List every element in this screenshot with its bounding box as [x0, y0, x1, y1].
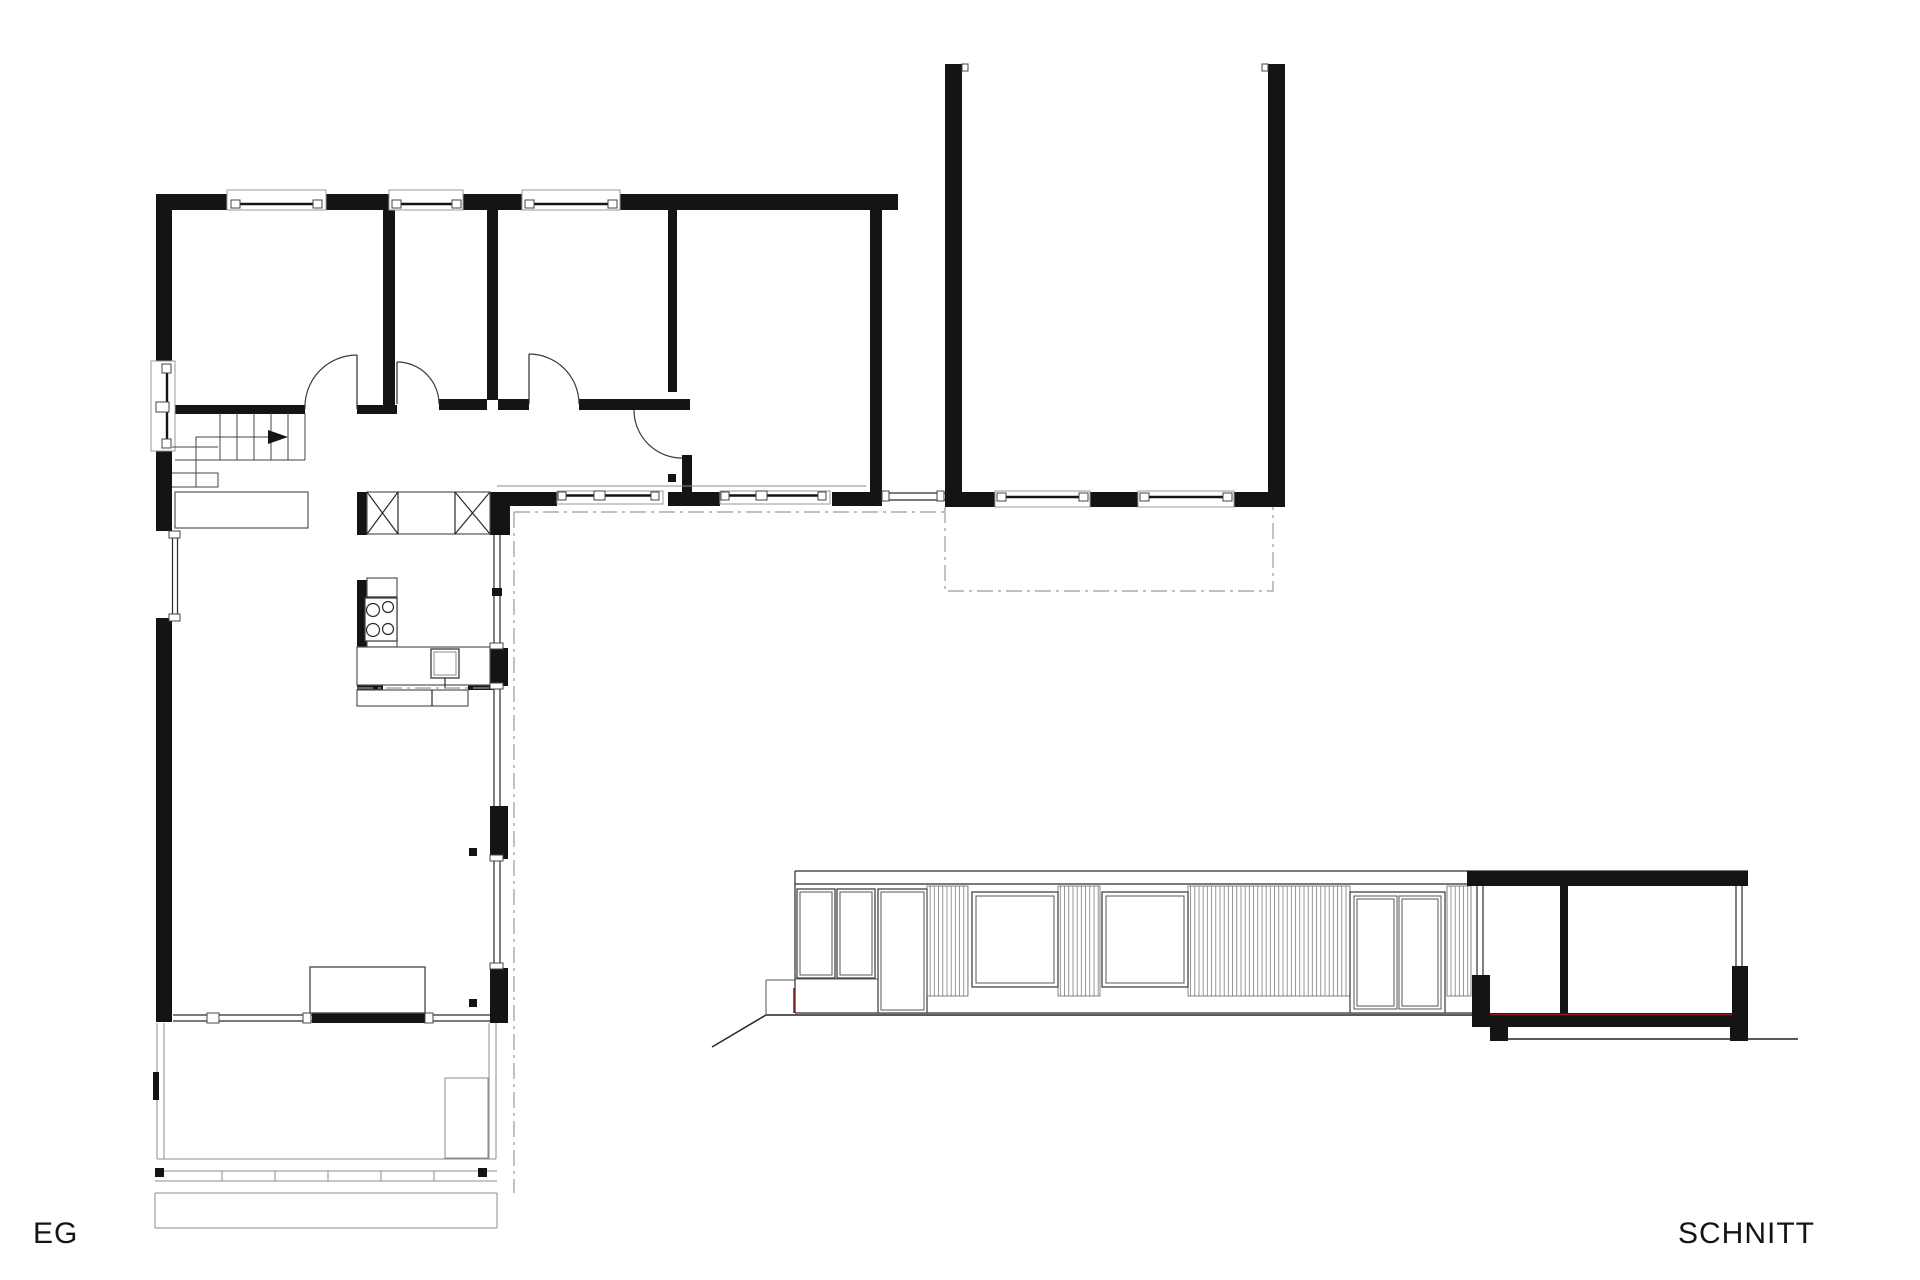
staircase: [172, 413, 305, 487]
cut-structure: [1467, 871, 1748, 1041]
stair-direction-arrow: [268, 430, 288, 444]
floor-plan: [151, 64, 1285, 1228]
garage: [945, 64, 1285, 507]
sliding-door: [1350, 892, 1445, 1013]
section-label: SCHNITT: [1678, 1217, 1815, 1250]
timber-cladding: [1058, 886, 1100, 996]
stove-icon: [365, 598, 397, 641]
exterior-walls: [156, 194, 898, 1023]
door-swing-icon: [305, 355, 357, 409]
drawing-sheet: EG SCHNITT: [0, 0, 1920, 1280]
window-icon: [720, 491, 830, 504]
window-icon: [227, 190, 326, 210]
garden-step: [155, 1193, 497, 1228]
large-window: [1102, 892, 1188, 987]
window-bay: [797, 889, 835, 978]
door-swing-icon: [634, 410, 682, 458]
timber-cladding: [1447, 886, 1471, 996]
terrace: [153, 1023, 497, 1228]
fireplace: [310, 967, 425, 1013]
roof-overhang-dashed: [514, 507, 1273, 1193]
window-icon: [1138, 491, 1234, 507]
foundation: [1490, 1027, 1508, 1041]
section: [712, 871, 1798, 1047]
terrace-railing: [155, 1168, 497, 1181]
interior-walls: [172, 210, 866, 495]
entry-stoop: [766, 980, 795, 1015]
window-icon: [522, 190, 620, 210]
foundation: [1730, 1027, 1748, 1041]
window-icon: [389, 190, 463, 210]
mullion: [492, 588, 502, 596]
roof-slab: [1467, 871, 1748, 886]
door-swing-icon: [397, 362, 439, 404]
window-icon: [995, 491, 1090, 507]
window-icon: [557, 491, 663, 504]
window-icon: [151, 361, 175, 451]
fence-link: [882, 491, 945, 501]
wardrobe-closets: [367, 492, 490, 534]
sideboard: [175, 492, 308, 528]
floor-plan-label: EG: [33, 1217, 78, 1250]
glass-door: [878, 889, 927, 1013]
glass-facade-east: [490, 535, 503, 969]
door-swing-icon: [529, 354, 579, 404]
large-window: [972, 892, 1058, 987]
kitchen: [357, 578, 493, 706]
window-bay: [837, 889, 875, 978]
facade-elevation: [766, 886, 1471, 1015]
planter: [445, 1078, 488, 1158]
architectural-drawing: EG SCHNITT: [0, 0, 1920, 1280]
entry-door: [169, 531, 180, 621]
timber-cladding: [927, 886, 968, 996]
timber-cladding: [1188, 886, 1350, 996]
cut-interior-wall: [1560, 886, 1568, 1013]
